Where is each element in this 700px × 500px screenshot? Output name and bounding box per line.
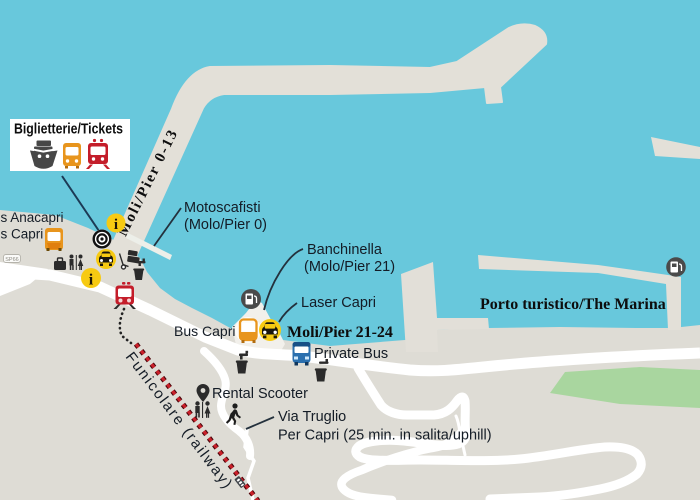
svg-text:Biglietterie/Tickets: Biglietterie/Tickets [14,122,123,138]
svg-text:Private Bus: Private Bus [314,346,388,362]
svg-text:Bus Anacapri: Bus Anacapri [0,210,64,225]
svg-text:Per Capri (25 min. in salita/u: Per Capri (25 min. in salita/uphill) [278,428,492,444]
svg-text:i: i [114,217,118,233]
svg-text:SP66: SP66 [5,257,18,263]
svg-text:Porto turistico/The Marina: Porto turistico/The Marina [480,296,666,313]
svg-text:Bus Capri: Bus Capri [174,323,235,339]
svg-text:Via Truglio: Via Truglio [278,409,346,425]
svg-text:Rental Scooter: Rental Scooter [212,386,308,402]
svg-text:(Molo/Pier 21): (Molo/Pier 21) [304,259,395,275]
svg-text:Moli/Pier 21-24: Moli/Pier 21-24 [287,324,393,341]
svg-text:i: i [89,272,94,289]
svg-text:Laser Capri: Laser Capri [301,295,376,311]
svg-text:Bus Capri: Bus Capri [0,227,43,242]
svg-text:Banchinella: Banchinella [307,242,383,258]
svg-text:Motoscafisti: Motoscafisti [184,200,261,216]
svg-text:(Molo/Pier 0): (Molo/Pier 0) [184,217,267,233]
